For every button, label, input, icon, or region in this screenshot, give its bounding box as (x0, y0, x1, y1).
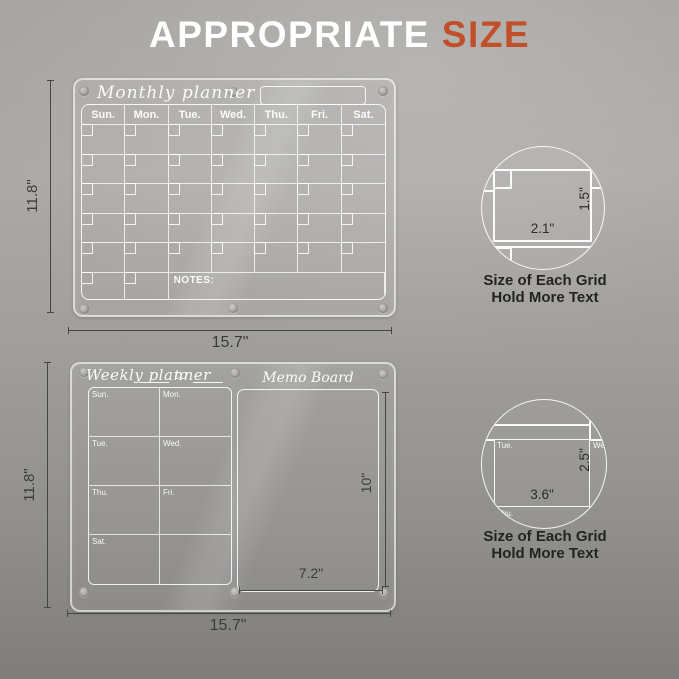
date-box (81, 213, 93, 225)
weekly-day-label: Sat. (92, 537, 106, 546)
date-box (341, 154, 353, 166)
weekly-day-label: Sun. (92, 390, 108, 399)
memo-width-dim-label: 7.2" (239, 565, 383, 581)
month-name-box (260, 86, 366, 105)
date-box (81, 183, 93, 195)
weekly-width-dim-label: 15.7" (158, 617, 298, 635)
date-box (341, 213, 353, 225)
grid-width-label: 2.1" (493, 221, 592, 236)
calendar-cell (342, 184, 385, 214)
date-box (124, 272, 136, 284)
memo-width-dim-line (239, 590, 383, 591)
mounting-screw (378, 86, 388, 96)
calendar-day-header: Thu. (255, 105, 298, 125)
calendar-cell (82, 243, 125, 273)
grid-line (482, 439, 494, 441)
calendar-cell (212, 184, 255, 214)
calendar-cell (169, 184, 212, 214)
grid-line (482, 424, 590, 426)
weekly-day-label: Wed. (163, 439, 182, 448)
calendar-cell (125, 155, 168, 185)
calendar-cell (82, 214, 125, 244)
mounting-screw (79, 86, 89, 96)
mounting-screw (228, 303, 238, 313)
weekly-day-label: Tue. (92, 439, 108, 448)
calendar-cell (212, 243, 255, 273)
grid-line (482, 190, 493, 192)
calendar-day-header: Sat. (342, 105, 385, 125)
grid-line (589, 400, 591, 439)
calendar-cell (169, 125, 212, 155)
calendar-day-header: Fri. (298, 105, 341, 125)
calendar-cell (298, 214, 341, 244)
caption-line2: Hold More Text (460, 545, 630, 562)
caption-line1: Size of Each Grid (460, 272, 630, 289)
date-box (297, 154, 309, 166)
mounting-screw (79, 587, 89, 597)
calendar-day-header: Wed. (212, 105, 255, 125)
grid-line (589, 507, 591, 528)
grid-line (494, 507, 496, 528)
date-box (124, 183, 136, 195)
calendar-cell (342, 243, 385, 273)
mounting-screw (378, 303, 388, 313)
memo-height-dim-label: 10" (342, 459, 390, 507)
calendar-cell (255, 243, 298, 273)
calendar-cell (212, 125, 255, 155)
weekly-day-cell: Mon. (160, 388, 231, 437)
weekly-day-cell: Sun. (89, 388, 160, 437)
calendar-day-header: Mon. (125, 105, 168, 125)
calendar-cell (169, 155, 212, 185)
calendar-cell (212, 155, 255, 185)
weekly-day-cell: Sat. (89, 535, 160, 584)
calendar-cell (255, 214, 298, 244)
grid-line (482, 506, 494, 508)
date-box (168, 124, 180, 136)
date-underscore-line (139, 370, 169, 383)
title-main: APPROPRIATE (149, 14, 430, 55)
calendar-cell (169, 243, 212, 273)
weekly-day-cell: Wed. (160, 437, 231, 486)
date-box (81, 124, 93, 136)
calendar-cell (82, 125, 125, 155)
to-label: to (174, 368, 187, 383)
date-box (341, 183, 353, 195)
date-box (211, 183, 223, 195)
calendar-cell (125, 243, 168, 273)
date-box (168, 183, 180, 195)
calendar-cell (125, 184, 168, 214)
calendar-cell (125, 273, 168, 299)
calendar-cell (342, 155, 385, 185)
calendar-day-header: Sun. (82, 105, 125, 125)
date-box (124, 242, 136, 254)
weekly-day-label: Thu. (497, 509, 513, 518)
date-box (211, 154, 223, 166)
date-box (341, 124, 353, 136)
date-box (211, 213, 223, 225)
calendar-cell (255, 125, 298, 155)
weekly-day-label: Thu. (92, 488, 108, 497)
weekly-day-label: Mon. (163, 390, 181, 399)
calendar-cell (298, 155, 341, 185)
calendar-cell (169, 214, 212, 244)
monthly-height-dim-label: 11.8" (8, 172, 56, 220)
grid-line (590, 506, 606, 508)
calendar-cell (298, 243, 341, 273)
memo-board-title: Memo Board (237, 370, 379, 386)
date-box (254, 124, 266, 136)
date-box (493, 247, 512, 267)
date-range-field: to (122, 368, 240, 383)
calendar-cell (82, 273, 125, 299)
date-box (297, 183, 309, 195)
monthly-planner-board: Monthly planner Sun.Mon.Tue.Wed.Thu.Fri.… (73, 78, 396, 317)
weekly-day-cell: Fri. (160, 486, 231, 535)
date-box (124, 124, 136, 136)
date-box (297, 213, 309, 225)
weekly-empty-cell (160, 535, 231, 584)
monthly-grid: Sun.Mon.Tue.Wed.Thu.Fri.Sat.NOTES: (81, 104, 386, 300)
date-box (254, 183, 266, 195)
mounting-screw (378, 369, 388, 379)
date-box (81, 242, 93, 254)
monthly-width-dim-line (68, 330, 392, 331)
title-accent: SIZE (442, 14, 530, 55)
weekly-grid-detail-circle: Tue. We Thu. 3.6" 2.5" (481, 399, 607, 529)
date-box (168, 154, 180, 166)
date-box (81, 154, 93, 166)
weekly-height-dim-label: 11.8" (5, 461, 53, 509)
calendar-cell (125, 125, 168, 155)
monthly-grid-detail-circle: 2.1" 1.5" (481, 146, 605, 270)
calendar-cell (255, 155, 298, 185)
date-box (124, 213, 136, 225)
calendar-cell (82, 184, 125, 214)
mounting-screw (79, 304, 89, 314)
date-box (341, 242, 353, 254)
date-box (297, 242, 309, 254)
date-box (168, 242, 180, 254)
date-box (81, 272, 93, 284)
date-box (168, 213, 180, 225)
calendar-cell (212, 214, 255, 244)
detail-caption-top: Size of Each Grid Hold More Text (460, 272, 630, 306)
grid-height-label: 1.5" (564, 179, 604, 219)
date-underscore-line (193, 370, 223, 383)
weekly-day-label: Fri. (163, 488, 175, 497)
calendar-cell (255, 184, 298, 214)
detail-caption-bottom: Size of Each Grid Hold More Text (460, 528, 630, 562)
weekly-planner-board: Weekly planner to Memo Board Sun.Mon.Tue… (70, 362, 396, 612)
calendar-cell (342, 125, 385, 155)
date-box (493, 169, 512, 189)
weekly-day-cell: Tue. (89, 437, 160, 486)
date-box (254, 242, 266, 254)
weekly-width-dim-line (67, 613, 391, 614)
calendar-cell (298, 125, 341, 155)
monthly-board-title: Monthly planner (97, 83, 255, 103)
calendar-cell (298, 184, 341, 214)
weekly-day-cell: Thu. (89, 486, 160, 535)
weekly-grid: Sun.Mon.Tue.Wed.Thu.Fri.Sat. (88, 387, 232, 585)
page-title: APPROPRIATE SIZE (0, 14, 679, 56)
monthly-width-dim-label: 15.7" (160, 334, 300, 352)
product-infographic: APPROPRIATE SIZE Monthly planner Sun.Mon… (0, 0, 679, 679)
date-box (211, 124, 223, 136)
calendar-cell (82, 155, 125, 185)
date-box (297, 124, 309, 136)
caption-line1: Size of Each Grid (460, 528, 630, 545)
weekly-day-label: Tue. (497, 441, 513, 450)
date-box (254, 154, 266, 166)
date-box (124, 154, 136, 166)
notes-cell: NOTES: (169, 273, 385, 299)
calendar-day-header: Tue. (169, 105, 212, 125)
grid-width-label: 3.6" (494, 487, 590, 502)
date-box (211, 242, 223, 254)
grid-height-label: 2.5" (564, 440, 604, 480)
caption-line2: Hold More Text (460, 289, 630, 306)
notes-label: NOTES: (174, 275, 215, 286)
calendar-cell (125, 214, 168, 244)
date-box (254, 213, 266, 225)
calendar-cell (342, 214, 385, 244)
